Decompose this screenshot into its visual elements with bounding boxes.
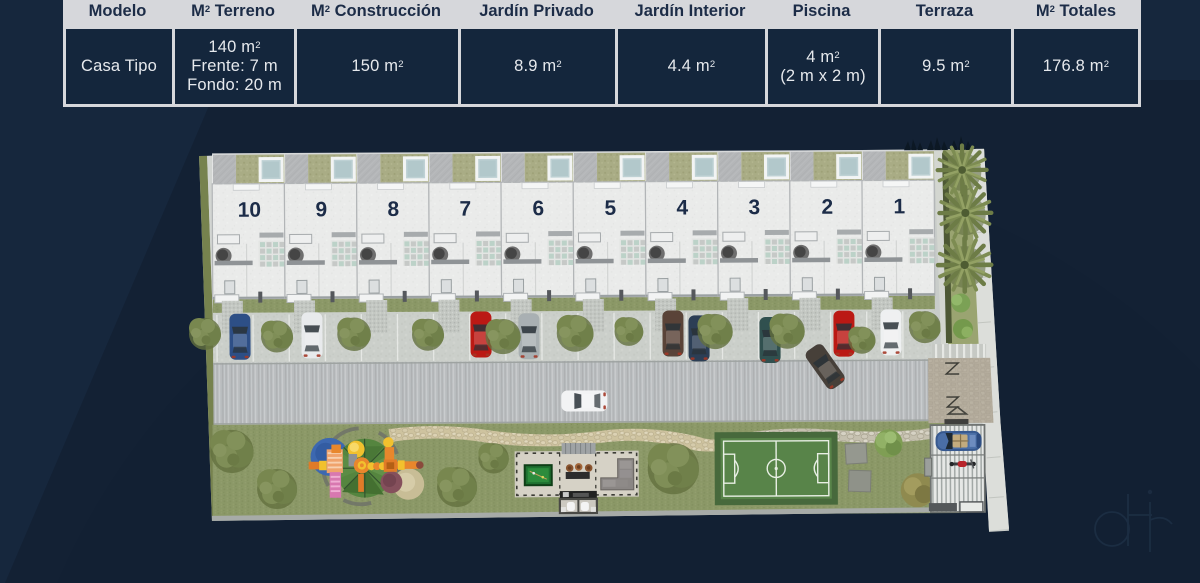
svg-text:8: 8: [387, 198, 399, 221]
svg-text:7: 7: [459, 198, 471, 221]
svg-text:1: 1: [893, 195, 905, 218]
svg-text:3: 3: [748, 196, 760, 219]
svg-text:2: 2: [821, 196, 833, 219]
svg-text:6: 6: [532, 197, 544, 220]
svg-text:9: 9: [315, 198, 327, 221]
svg-text:10: 10: [238, 199, 261, 222]
svg-text:5: 5: [604, 197, 616, 220]
svg-text:4: 4: [676, 196, 688, 219]
